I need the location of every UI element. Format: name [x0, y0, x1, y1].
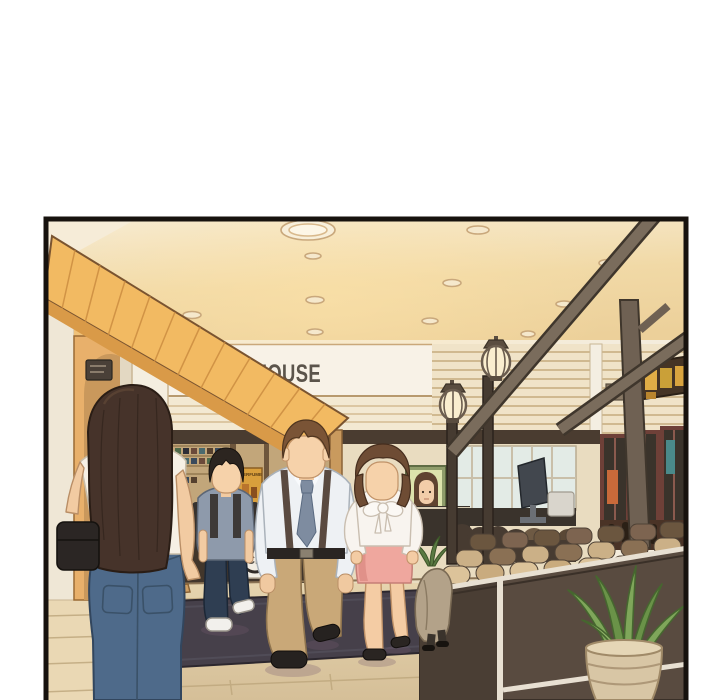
window-poster-teal	[666, 440, 675, 474]
shoulder-bag	[57, 522, 99, 570]
sneaker	[206, 618, 232, 631]
lantern-lamp-icon	[440, 380, 466, 423]
storefront-header	[158, 430, 600, 444]
arch-sign	[86, 360, 112, 380]
flat-shoe	[363, 649, 386, 660]
dress-shoe	[271, 651, 307, 668]
window-poster-orange	[607, 470, 618, 504]
face	[287, 436, 325, 478]
comic-panel-illustration: CLEAN HOUSE	[0, 0, 720, 700]
face	[366, 462, 398, 500]
comic-panel-page: CLEAN HOUSE	[0, 0, 720, 700]
